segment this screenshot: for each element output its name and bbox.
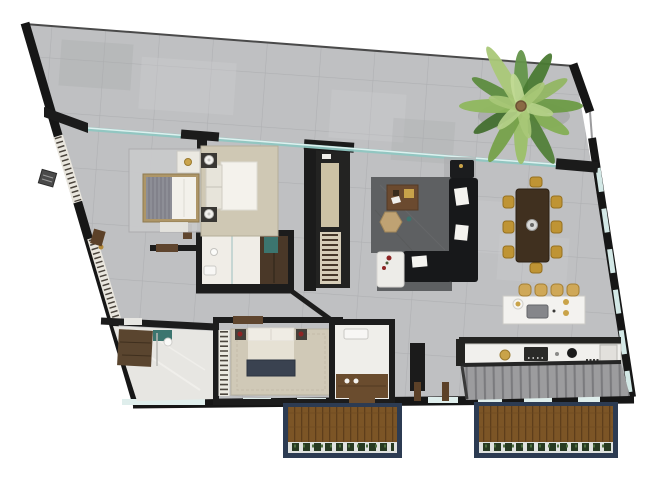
bed1-foot-mat xyxy=(160,222,188,232)
coffee-table-tray xyxy=(404,189,414,198)
counter-pot xyxy=(567,348,577,358)
bar-stool xyxy=(519,284,531,296)
dining-chair xyxy=(503,246,514,258)
decor-teal xyxy=(407,217,412,222)
flower-vase-red xyxy=(299,332,304,337)
armchair xyxy=(450,160,474,178)
flower-red xyxy=(382,266,386,270)
sofa-cushion xyxy=(412,255,428,267)
ensuite-toilet xyxy=(204,266,216,275)
dining-chair xyxy=(530,177,542,187)
powder-toilet xyxy=(344,329,368,339)
dining-chair xyxy=(551,221,562,233)
staircase xyxy=(461,363,630,400)
bathroom-sink xyxy=(164,338,172,346)
tile-patch xyxy=(58,40,133,91)
sofa-cushion xyxy=(454,187,469,206)
flower-vase-red xyxy=(238,332,243,337)
flower-leaf xyxy=(386,262,389,265)
bathroom-vanity-wood xyxy=(117,329,153,367)
floor-plan-screenshot: Apartment floor plan — top-down 3D rende… xyxy=(0,0,660,490)
balcony-deck xyxy=(288,407,397,442)
sofa-chaise-black xyxy=(403,251,452,282)
stove xyxy=(524,347,548,361)
door-threshold-wood xyxy=(156,244,178,252)
balcony-deck xyxy=(479,406,613,442)
bed2-duvet xyxy=(221,162,257,210)
floor-plan-canvas xyxy=(0,0,660,490)
dining-chair xyxy=(503,196,514,208)
door-bathroom-main xyxy=(124,318,142,325)
flower-red xyxy=(387,256,392,261)
wall-unit-shelf xyxy=(321,163,339,227)
bed3-duvet xyxy=(248,341,294,361)
counter-sink-gold xyxy=(500,350,510,360)
ensuite-sink xyxy=(211,249,218,256)
bed2-lamp-dot xyxy=(208,213,211,216)
floor-plan-scene xyxy=(25,23,634,458)
dining-chair xyxy=(551,246,562,258)
bed1-lamp xyxy=(185,159,192,166)
palm-trunk xyxy=(516,101,526,111)
counter-endcap xyxy=(456,339,465,366)
ac-unit xyxy=(38,169,56,187)
bed1-blanket xyxy=(146,177,172,219)
dining-centerpiece-dot xyxy=(530,223,534,227)
counter-item xyxy=(555,352,559,356)
wood-post xyxy=(442,382,449,401)
bed2-lamp-dot xyxy=(208,159,211,162)
edge-right-thin xyxy=(590,112,592,138)
dining-chair xyxy=(503,221,514,233)
dining-chair xyxy=(530,263,542,273)
tile-patch xyxy=(138,57,236,116)
dining-chair xyxy=(551,196,562,208)
bar-stool xyxy=(535,284,547,296)
armchair-pillow-gold xyxy=(459,164,463,168)
bar-stool xyxy=(567,284,579,296)
bed3-blanket xyxy=(247,360,295,376)
shelf-item xyxy=(322,154,331,159)
bath-accessory xyxy=(354,379,359,384)
island-item-dot xyxy=(553,310,556,313)
wood-post xyxy=(414,382,421,401)
coffee-table-box xyxy=(393,190,399,196)
bar-stool xyxy=(551,284,563,296)
bath-accessory xyxy=(345,379,350,384)
island-faucet-gold xyxy=(516,302,521,307)
island-gold-dot xyxy=(563,310,569,316)
island-gold-dot xyxy=(563,299,569,305)
island-sink xyxy=(527,305,548,318)
counter-appliance xyxy=(600,345,617,362)
sofa-cushion xyxy=(454,224,468,240)
door-threshold-wood xyxy=(233,316,263,324)
ensuite-teal-accent xyxy=(264,237,278,253)
wall-unit-spine xyxy=(304,146,316,291)
